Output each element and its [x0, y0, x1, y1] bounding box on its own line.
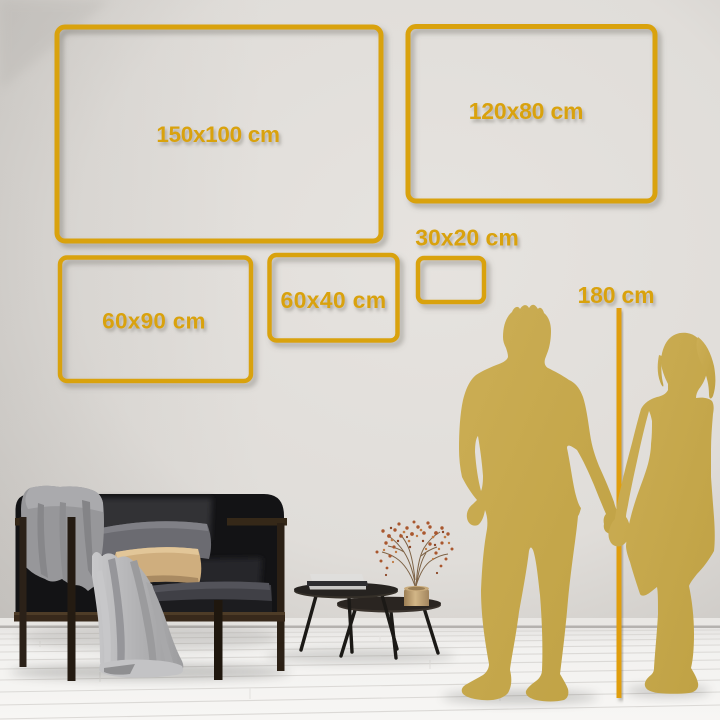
svg-text:120x80 cm: 120x80 cm [469, 98, 584, 124]
svg-text:150x100 cm: 150x100 cm [156, 122, 279, 147]
svg-text:30x20 cm: 30x20 cm [415, 225, 519, 251]
svg-text:180 cm: 180 cm [578, 282, 655, 308]
svg-text:60x90 cm: 60x90 cm [102, 309, 206, 334]
svg-text:60x40 cm: 60x40 cm [281, 287, 387, 313]
